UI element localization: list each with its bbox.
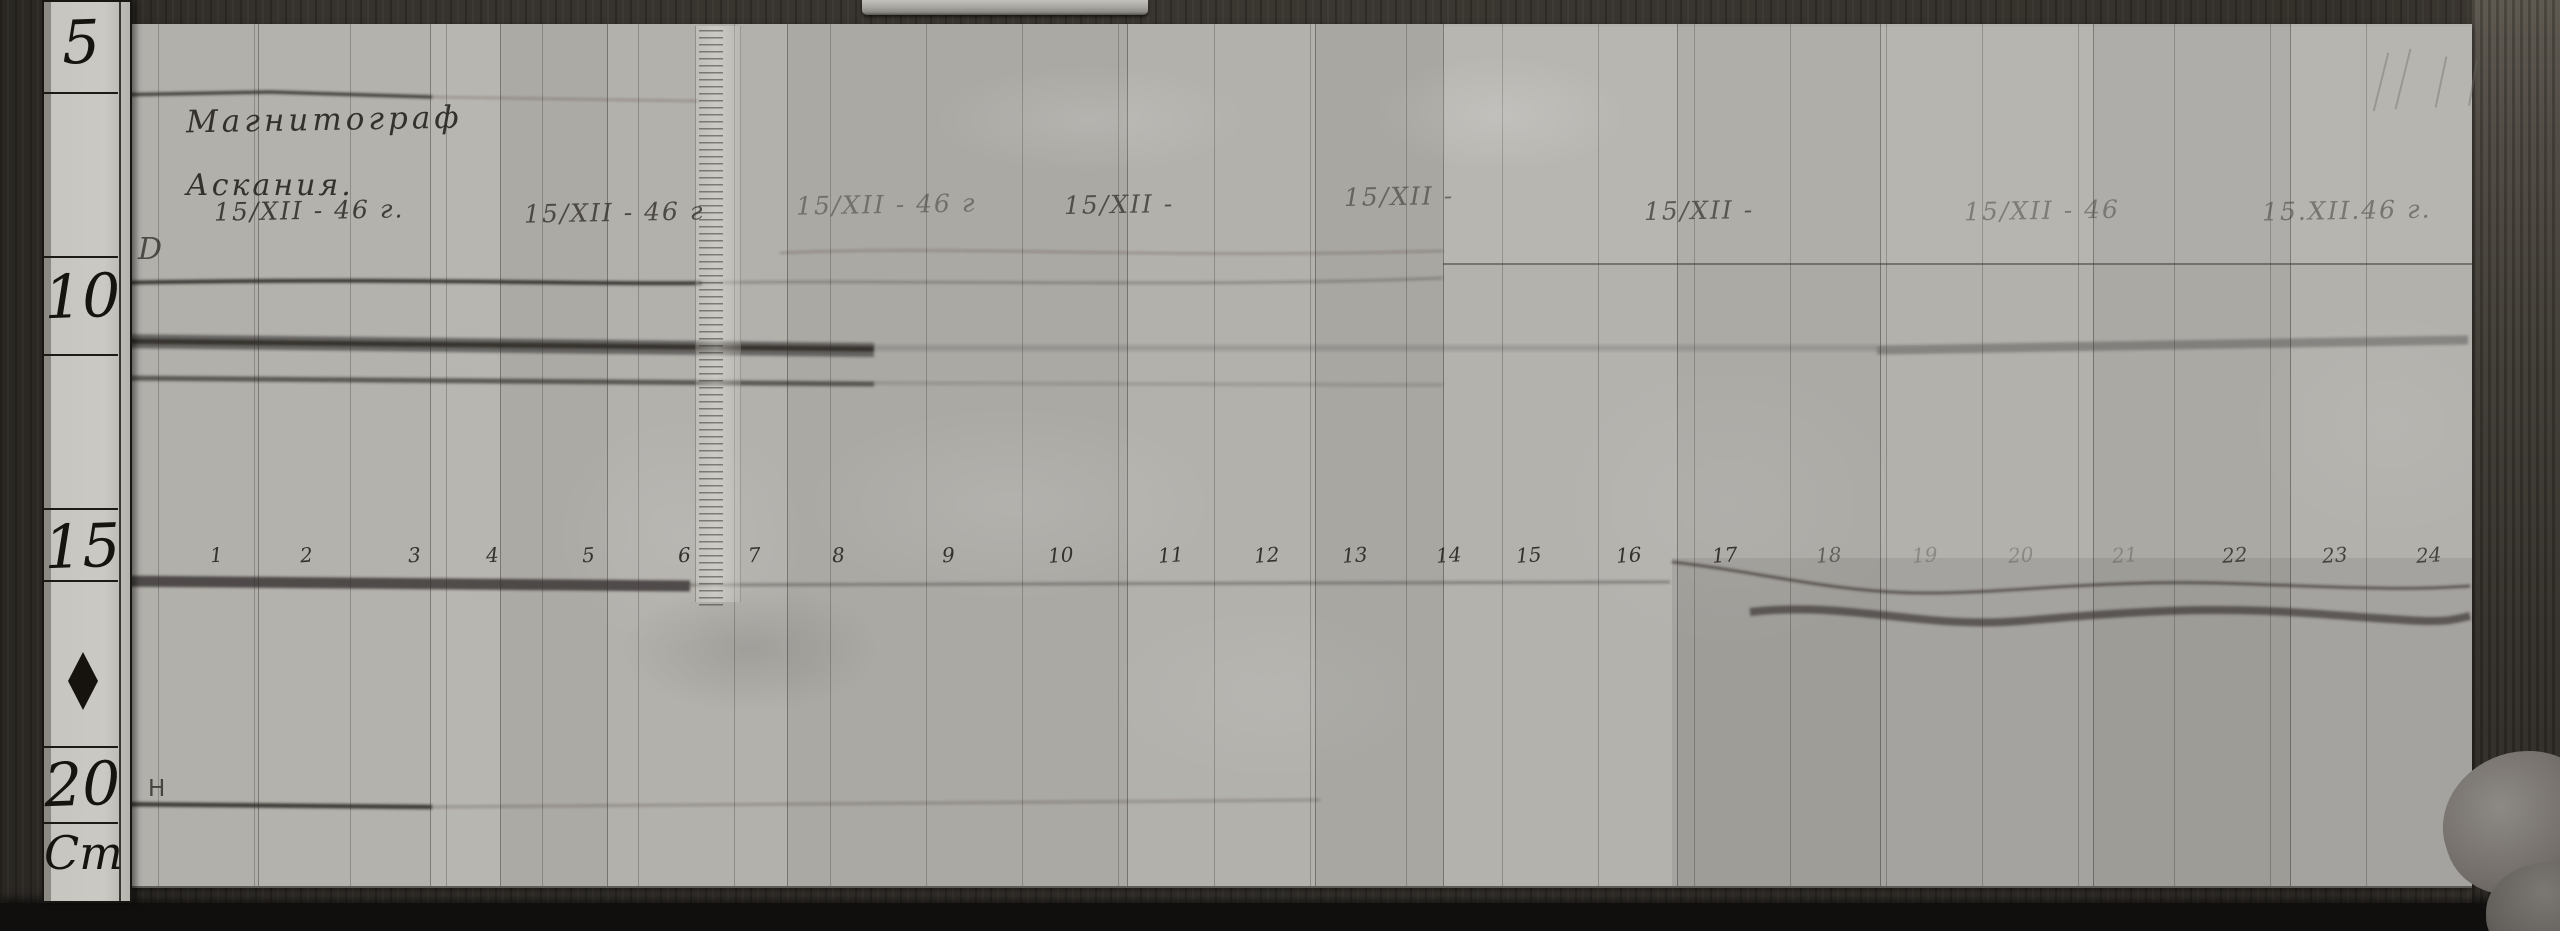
hour-number: 24 xyxy=(2415,542,2442,568)
hour-number: 23 xyxy=(2321,542,2348,568)
hour-number: 1 xyxy=(209,543,223,568)
cm-ruler: 5101520 Cm xyxy=(42,0,132,903)
hour-number: 9 xyxy=(941,543,955,568)
hour-number: 22 xyxy=(2221,542,2248,568)
hour-number: 20 xyxy=(2007,542,2034,568)
ruler-mark: 20 xyxy=(43,749,119,822)
ruler-division-line xyxy=(44,354,118,356)
hour-number: 4 xyxy=(485,543,499,568)
ruler-mark: 5 xyxy=(43,7,119,80)
ruler-unit-label: Cm xyxy=(44,826,118,880)
hour-number: 5 xyxy=(581,543,595,568)
hour-number: 13 xyxy=(1341,542,1368,568)
ruler-mark: 10 xyxy=(43,261,119,334)
ruler-division-line xyxy=(44,256,118,258)
hour-number: 6 xyxy=(677,543,691,568)
ruler-division-line xyxy=(44,746,118,748)
ruler-division-line xyxy=(44,508,118,510)
hour-number: 15 xyxy=(1515,542,1542,568)
hour-number: 14 xyxy=(1435,542,1462,568)
hour-number: 21 xyxy=(2111,542,2138,568)
magnetogram-photo: 5101520 Cm Магнитограф Аскания. D H 15/X… xyxy=(0,0,2560,931)
hour-number: 10 xyxy=(1047,542,1074,568)
diamond-icon xyxy=(68,652,98,710)
hour-number: 2 xyxy=(299,543,313,568)
faint-pencil-marks xyxy=(2368,38,2488,118)
hour-number: 3 xyxy=(407,543,421,568)
ruler-division-line xyxy=(44,822,118,824)
hour-number: 16 xyxy=(1615,542,1642,568)
hour-number: 8 xyxy=(831,543,845,568)
hour-number: 7 xyxy=(747,543,761,568)
hour-number: 17 xyxy=(1711,542,1738,568)
hour-number: 18 xyxy=(1815,542,1842,568)
hour-number: 12 xyxy=(1253,542,1280,568)
hour-number: 19 xyxy=(1911,542,1938,568)
hour-number: 11 xyxy=(1157,542,1184,568)
hour-numbers-layer: 123456789101112131415161718192021222324 xyxy=(0,0,2560,931)
ruler-mark: 15 xyxy=(43,511,119,584)
ruler-division-line xyxy=(44,92,118,94)
